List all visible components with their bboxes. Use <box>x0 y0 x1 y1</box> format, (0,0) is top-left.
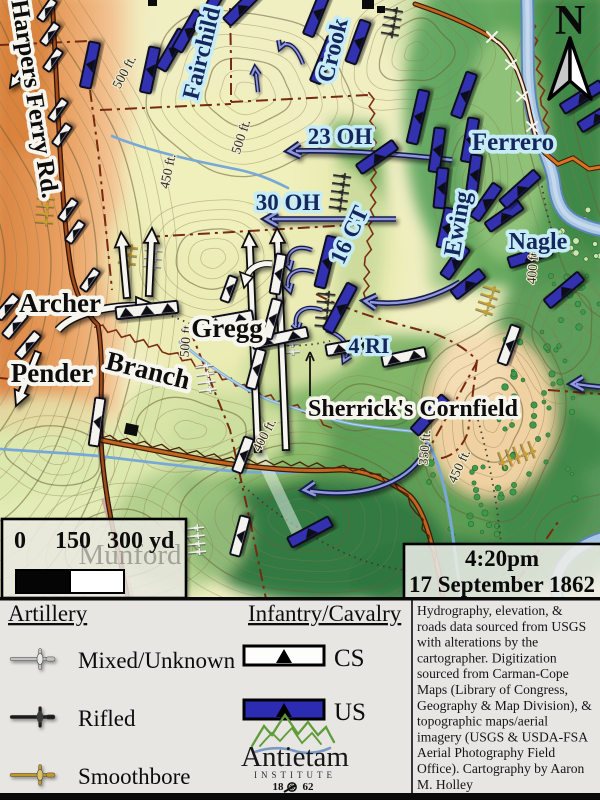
svg-text:Hydrography, elevation, &: Hydrography, elevation, & <box>417 603 563 618</box>
svg-text:Archer: Archer <box>19 288 101 318</box>
svg-text:Smoothbore: Smoothbore <box>78 764 190 789</box>
svg-text:Nagle: Nagle <box>509 229 568 255</box>
svg-text:Pender: Pender <box>11 358 93 388</box>
svg-text:Artillery: Artillery <box>8 601 88 626</box>
svg-text:4 RI: 4 RI <box>349 333 390 358</box>
svg-text:topographic maps/aerial: topographic maps/aerial <box>417 714 548 729</box>
svg-text:Sherrick's Cornfield: Sherrick's Cornfield <box>308 396 519 422</box>
svg-text:CS: CS <box>334 645 365 672</box>
svg-text:Geography & Map Division), &: Geography & Map Division), & <box>417 698 592 714</box>
svg-text:18: 18 <box>273 781 285 793</box>
svg-text:4:20pm: 4:20pm <box>465 546 539 571</box>
svg-text:Infantry/Cavalry: Infantry/Cavalry <box>248 601 402 626</box>
svg-text:Rifled: Rifled <box>78 706 136 731</box>
svg-text:Ferrero: Ferrero <box>472 129 554 156</box>
svg-text:0: 0 <box>14 528 26 554</box>
svg-text:17 September 1862: 17 September 1862 <box>409 572 595 597</box>
svg-text:INSTITUTE: INSTITUTE <box>254 770 336 780</box>
svg-text:350 ft.: 350 ft. <box>416 429 434 465</box>
svg-text:US: US <box>334 699 366 726</box>
svg-text:imagery (USGS & USDA-FSA: imagery (USGS & USDA-FSA <box>417 729 588 745</box>
svg-text:Gregg: Gregg <box>191 313 263 343</box>
svg-text:300 yd: 300 yd <box>107 528 175 554</box>
svg-text:Office). Cartography by Aaron: Office). Cartography by Aaron <box>417 761 585 777</box>
svg-text:Antietam: Antietam <box>241 741 349 773</box>
svg-text:Aerial Photography Field: Aerial Photography Field <box>417 745 555 760</box>
svg-text:M. Holley: M. Holley <box>417 777 473 792</box>
svg-text:roads data sourced from USGS: roads data sourced from USGS <box>417 619 586 634</box>
svg-text:Maps (Library of Congress,: Maps (Library of Congress, <box>417 682 568 698</box>
svg-text:150: 150 <box>55 528 91 554</box>
svg-text:sourced from Carman-Cope: sourced from Carman-Cope <box>417 666 569 681</box>
svg-text:62: 62 <box>303 781 315 793</box>
svg-text:Mixed/Unknown: Mixed/Unknown <box>78 648 236 673</box>
svg-text:30 OH: 30 OH <box>256 190 321 215</box>
svg-text:23 OH: 23 OH <box>308 124 373 149</box>
svg-text:cartographer. Digitization: cartographer. Digitization <box>417 650 557 665</box>
svg-text:with alterations by the: with alterations by the <box>417 635 538 650</box>
